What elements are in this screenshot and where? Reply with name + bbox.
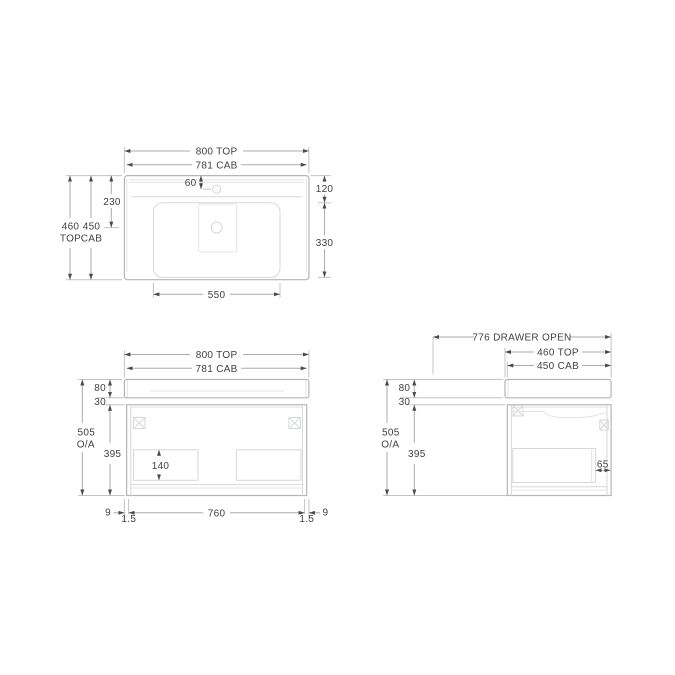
dim-cab-height-395-side: 395 [408, 449, 426, 460]
sink-top-outline [124, 176, 309, 280]
dim-basin-depth-330: 330 [316, 238, 334, 249]
dim-overall-oa-side: O/A [381, 440, 399, 451]
dim-back-gap-65: 65 [597, 459, 609, 470]
dim-overall-oa: O/A [77, 440, 95, 451]
dim-reveal-1-5-left: 1.5 [121, 514, 136, 525]
drain-hole [211, 222, 222, 233]
dim-depth-450-value: 450 [83, 222, 101, 233]
side-view: 776 DRAWER OPEN 460 TOP 450 CAB 505 O/A … [381, 333, 611, 496]
dim-basin-width-550: 550 [208, 290, 226, 301]
dim-depth-460-unit: TOP [60, 234, 81, 245]
dim-overall-505: 505 [78, 428, 96, 439]
top-view: 800 TOP 781 CAB 460 450 TOP CAB 230 60 1… [60, 147, 334, 301]
dim-top-thickness-80: 80 [94, 383, 106, 394]
cabinet-walls-side [511, 405, 607, 496]
drain-channel [199, 204, 237, 252]
basin-underside-profile [512, 412, 606, 418]
dim-drawer-open-776: 776 DRAWER OPEN [472, 333, 571, 344]
dim-front-width-800: 800 TOP [196, 350, 238, 361]
side-view-dimensions: 776 DRAWER OPEN 460 TOP 450 CAB 505 O/A … [381, 333, 611, 496]
front-view: 800 TOP 781 CAB 505 O/A 80 30 395 140 76… [77, 350, 329, 525]
mounting-bracket-left [134, 418, 146, 429]
dim-depth-450-cab: 450 CAB [537, 361, 579, 372]
faucet-hole [213, 185, 221, 193]
back-rim-lines [129, 180, 304, 183]
dim-depth-460-value: 460 [62, 222, 80, 233]
dim-top-thickness-80-side: 80 [399, 383, 411, 394]
dim-drawer-internal-140: 140 [152, 461, 170, 472]
sink-top-side [505, 380, 611, 398]
front-view-object [124, 380, 309, 496]
dim-drawer-width-760: 760 [208, 508, 226, 519]
dim-depth-460-top: 460 TOP [537, 348, 579, 359]
dim-drain-offset-230: 230 [103, 197, 121, 208]
dim-front-width-781: 781 CAB [196, 364, 238, 375]
dim-cab-height-395: 395 [104, 449, 122, 460]
mounting-bracket-right [289, 418, 301, 429]
drawer-box-side [513, 449, 596, 483]
sink-top-front [124, 380, 309, 398]
drawing-svg: 800 TOP 781 CAB 460 450 TOP CAB 230 60 1… [0, 0, 675, 675]
dim-side-gap-9-right: 9 [323, 508, 329, 519]
dim-overall-505-side: 505 [382, 428, 400, 439]
dim-reveal-1-5-right: 1.5 [299, 514, 314, 525]
drawer-compartment-right [236, 450, 301, 481]
vanity-dimension-drawing: 800 TOP 781 CAB 460 450 TOP CAB 230 60 1… [0, 0, 675, 675]
dim-top-width-781: 781 CAB [196, 160, 238, 171]
top-view-object [124, 176, 309, 280]
side-view-object [505, 380, 611, 496]
dim-gap-30-side: 30 [399, 397, 411, 408]
dim-back-to-basin-120: 120 [316, 184, 334, 195]
top-front-details [127, 381, 306, 398]
front-view-dimensions: 800 TOP 781 CAB 505 O/A 80 30 395 140 76… [77, 350, 329, 525]
dim-top-width-800: 800 TOP [196, 147, 238, 158]
dim-faucet-offset-60: 60 [185, 178, 197, 189]
dim-side-gap-9-left: 9 [105, 508, 111, 519]
basin-outline [153, 203, 280, 278]
dim-depth-450-unit: CAB [81, 234, 102, 245]
dim-gap-30: 30 [94, 397, 106, 408]
